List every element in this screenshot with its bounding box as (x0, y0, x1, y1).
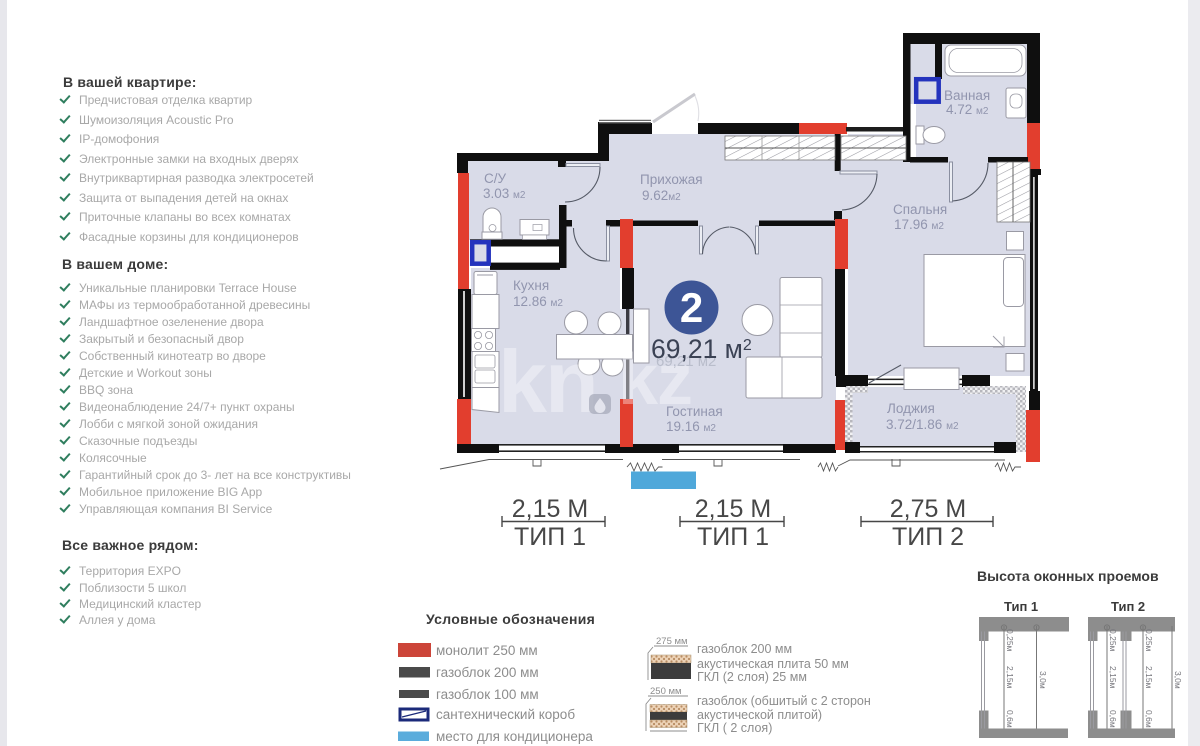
svg-text:Высота оконных проемов: Высота оконных проемов (977, 568, 1159, 584)
svg-text:Кухня: Кухня (513, 278, 549, 293)
svg-text:2,15 М: 2,15 М (512, 495, 588, 523)
svg-text:Ванная: Ванная (944, 88, 990, 103)
svg-text:0,6м: 0,6м (1144, 710, 1154, 728)
svg-text:Лоджия: Лоджия (887, 401, 935, 416)
svg-text:2,15м: 2,15м (1108, 666, 1118, 689)
svg-text:газоблок (обшитый с 2 сторон: газоблок (обшитый с 2 сторон (697, 694, 871, 708)
svg-text:2,15м: 2,15м (1005, 666, 1015, 689)
svg-text:2,15м: 2,15м (1144, 666, 1154, 689)
svg-text:акустической плитой): акустической плитой) (697, 708, 822, 722)
svg-text:0,25м: 0,25м (1005, 629, 1015, 652)
svg-text:Прихожая: Прихожая (640, 172, 703, 187)
svg-text:3,0м: 3,0м (1173, 671, 1183, 689)
svg-text:Спальня: Спальня (893, 202, 947, 217)
svg-text:0,6м: 0,6м (1108, 710, 1118, 728)
svg-text:2,75 М: 2,75 М (890, 495, 966, 523)
svg-text:Гостиная: Гостиная (666, 404, 723, 419)
svg-text:69,21 м2: 69,21 м2 (651, 334, 752, 364)
svg-text:ГКЛ (2 слоя) 25 мм: ГКЛ (2 слоя) 25 мм (697, 670, 807, 684)
svg-text:kn: kn (498, 332, 597, 431)
svg-text:Тип 1: Тип 1 (1004, 599, 1038, 614)
svg-text:0,25м: 0,25м (1108, 629, 1118, 652)
svg-text:Условные обозначения: Условные обозначения (426, 611, 595, 627)
svg-text:акустическая плита 50 мм: акустическая плита 50 мм (697, 657, 849, 671)
svg-text:монолит 250 мм: монолит 250 мм (436, 643, 538, 658)
svg-text:С/У: С/У (484, 171, 507, 186)
svg-text:0,6м: 0,6м (1005, 710, 1015, 728)
svg-text:газоблок 100 мм: газоблок 100 мм (436, 687, 539, 702)
svg-text:Тип 2: Тип 2 (1111, 599, 1145, 614)
svg-text:газоблок 200 мм: газоблок 200 мм (436, 665, 539, 680)
svg-text:ГКЛ ( 2 слоя): ГКЛ ( 2 слоя) (697, 721, 772, 735)
svg-text:250 мм: 250 мм (650, 686, 682, 697)
svg-text:газоблок 200 мм: газоблок 200 мм (697, 642, 792, 656)
svg-text:ТИП 1: ТИП 1 (514, 523, 586, 551)
svg-text:3,0м: 3,0м (1038, 671, 1048, 689)
svg-text:275 мм: 275 мм (656, 636, 688, 647)
svg-text:2: 2 (680, 284, 703, 331)
svg-text:2,15 М: 2,15 М (695, 495, 771, 523)
svg-text:место для кондиционера: место для кондиционера (436, 729, 593, 744)
svg-text:ТИП 2: ТИП 2 (892, 523, 964, 551)
svg-text:0,25м: 0,25м (1144, 629, 1154, 652)
svg-text:сантехнический короб: сантехнический короб (436, 707, 575, 722)
svg-text:ТИП 1: ТИП 1 (697, 523, 769, 551)
